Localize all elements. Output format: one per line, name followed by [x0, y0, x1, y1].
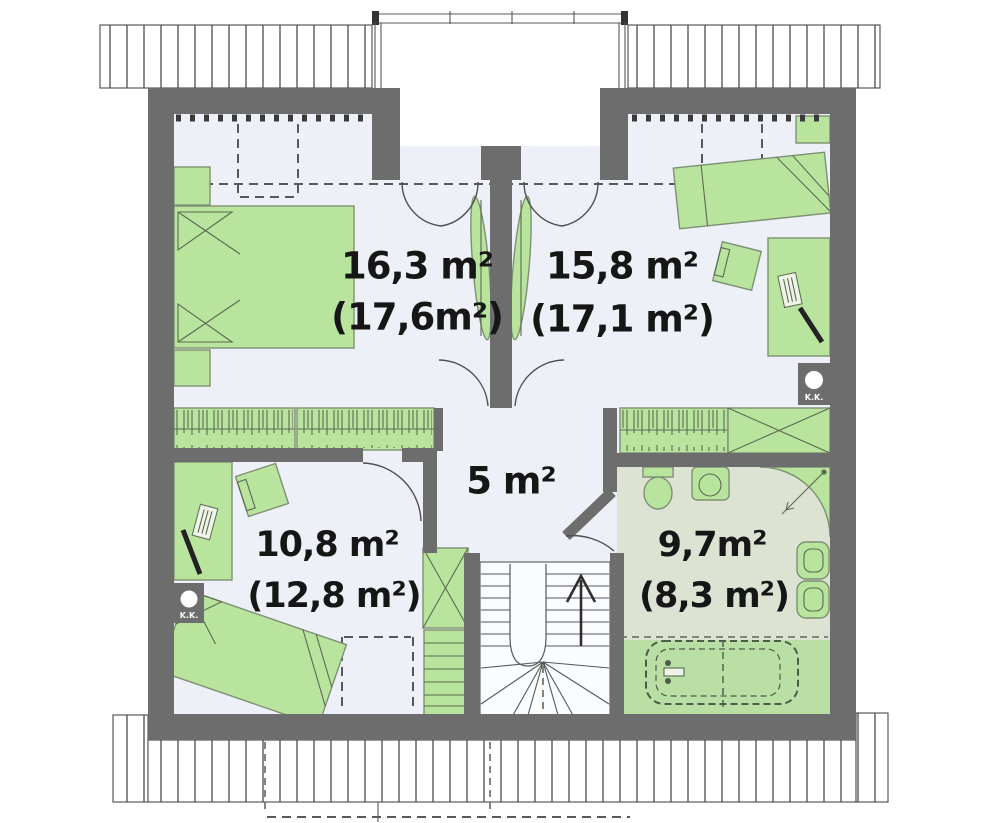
dormer-pier-center: [481, 146, 521, 180]
dormer-pier-right: [600, 88, 628, 180]
room-label-bedroom-left-area: 16,3 m²: [341, 245, 493, 288]
nightstand: [174, 167, 210, 205]
wall-bathroom-top: [603, 453, 830, 467]
wall-top-right: [628, 88, 856, 114]
balcony-floor: [400, 24, 600, 146]
wall-hall-left: [174, 448, 363, 462]
room-label-bathroom-area: 9,7m²: [658, 525, 767, 565]
room-label-hall-area: 5 m²: [466, 460, 555, 503]
toilet: [643, 467, 673, 509]
nightstand: [174, 350, 210, 386]
dormer-pier-left: [372, 88, 400, 180]
chair: [713, 242, 761, 290]
bedroom-right-wardrobe: [620, 408, 830, 453]
washbasin: [692, 467, 729, 500]
svg-text:K.K.: K.K.: [180, 611, 198, 620]
partition-bedrooms: [490, 180, 512, 408]
wall-top-left: [148, 88, 372, 114]
room-label-bedroom-left-note: (17,6m²): [331, 296, 503, 339]
wall-bottom: [148, 714, 856, 740]
wall-left: [148, 88, 174, 740]
room-label-lower-left-area: 10,8 m²: [255, 525, 398, 565]
room-label-bedroom-right-area: 15,8 m²: [546, 245, 698, 288]
wall-hall-west: [423, 448, 437, 553]
floor-plan-drawing: K.K. K.K.: [0, 0, 1000, 823]
wall-hall-east: [603, 408, 617, 492]
wardrobe-end-wall: [434, 408, 443, 451]
stair-void: [510, 564, 546, 666]
floor-plan: K.K. K.K. 16,3 m² (17,6m²) 15,8 m² (17,1…: [0, 0, 1000, 823]
chimney-left: K.K.: [174, 583, 204, 623]
shelf-unit: [424, 630, 468, 716]
room-label-lower-left-note: (12,8 m²): [247, 576, 420, 616]
svg-text:K.K.: K.K.: [805, 393, 823, 402]
chimney-right: K.K.: [798, 363, 830, 405]
room-label-bathroom-note: (8,3 m²): [639, 576, 789, 616]
wall-stair-right: [610, 553, 624, 740]
wall-stair-left: [464, 553, 480, 740]
room-label-bedroom-right-note: (17,1 m²): [530, 298, 714, 341]
wall-right: [830, 88, 856, 740]
wardrobe-strip: [174, 408, 434, 450]
